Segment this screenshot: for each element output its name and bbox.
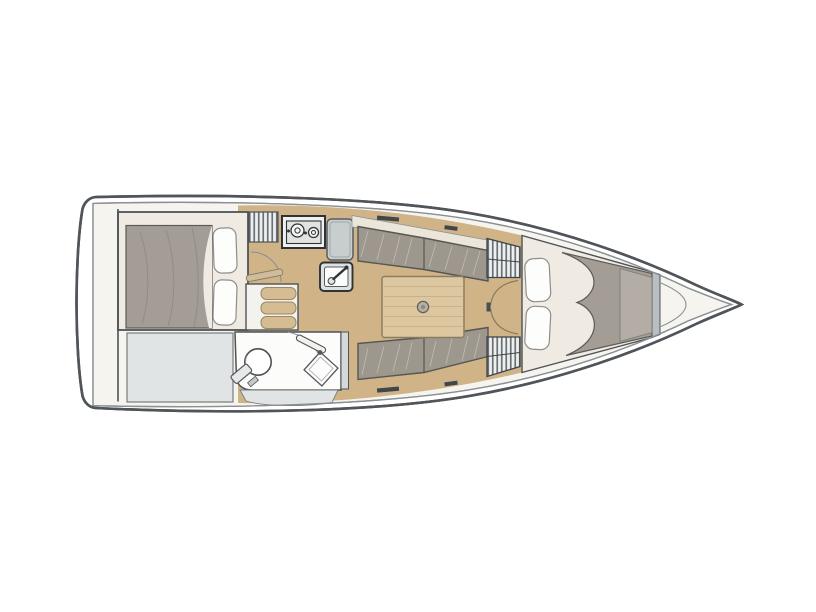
- door-latch: [487, 303, 491, 312]
- step-tread-3: [261, 317, 296, 329]
- head-wall: [341, 332, 349, 389]
- companionway-hatch: [249, 212, 278, 242]
- boat-floor-plan: [0, 0, 816, 612]
- aft-pillow-2: [213, 280, 238, 326]
- stove-burner-2: [309, 228, 319, 238]
- stove-knob-1: [287, 230, 290, 233]
- galley-counter: [327, 219, 353, 260]
- vberth-pillow-2: [524, 306, 551, 350]
- bow-bulkhead: [652, 272, 660, 338]
- stove-burner-1: [291, 224, 304, 237]
- step-tread-1: [261, 288, 296, 300]
- step-tread-2: [261, 302, 296, 314]
- table-leg-center: [421, 305, 425, 309]
- floor-plan-canvas: [0, 0, 816, 612]
- galley-faucet-head: [345, 266, 349, 270]
- vberth-duvet-end: [620, 269, 652, 342]
- vberth-pillow-1: [524, 258, 551, 302]
- head-bathroom: [230, 332, 348, 406]
- stove-knob-2: [304, 232, 307, 235]
- aft-pillow-1: [213, 228, 238, 274]
- aft-double-cabin: [118, 212, 248, 330]
- aft-stowage: [127, 333, 233, 402]
- head-faucet: [318, 350, 323, 355]
